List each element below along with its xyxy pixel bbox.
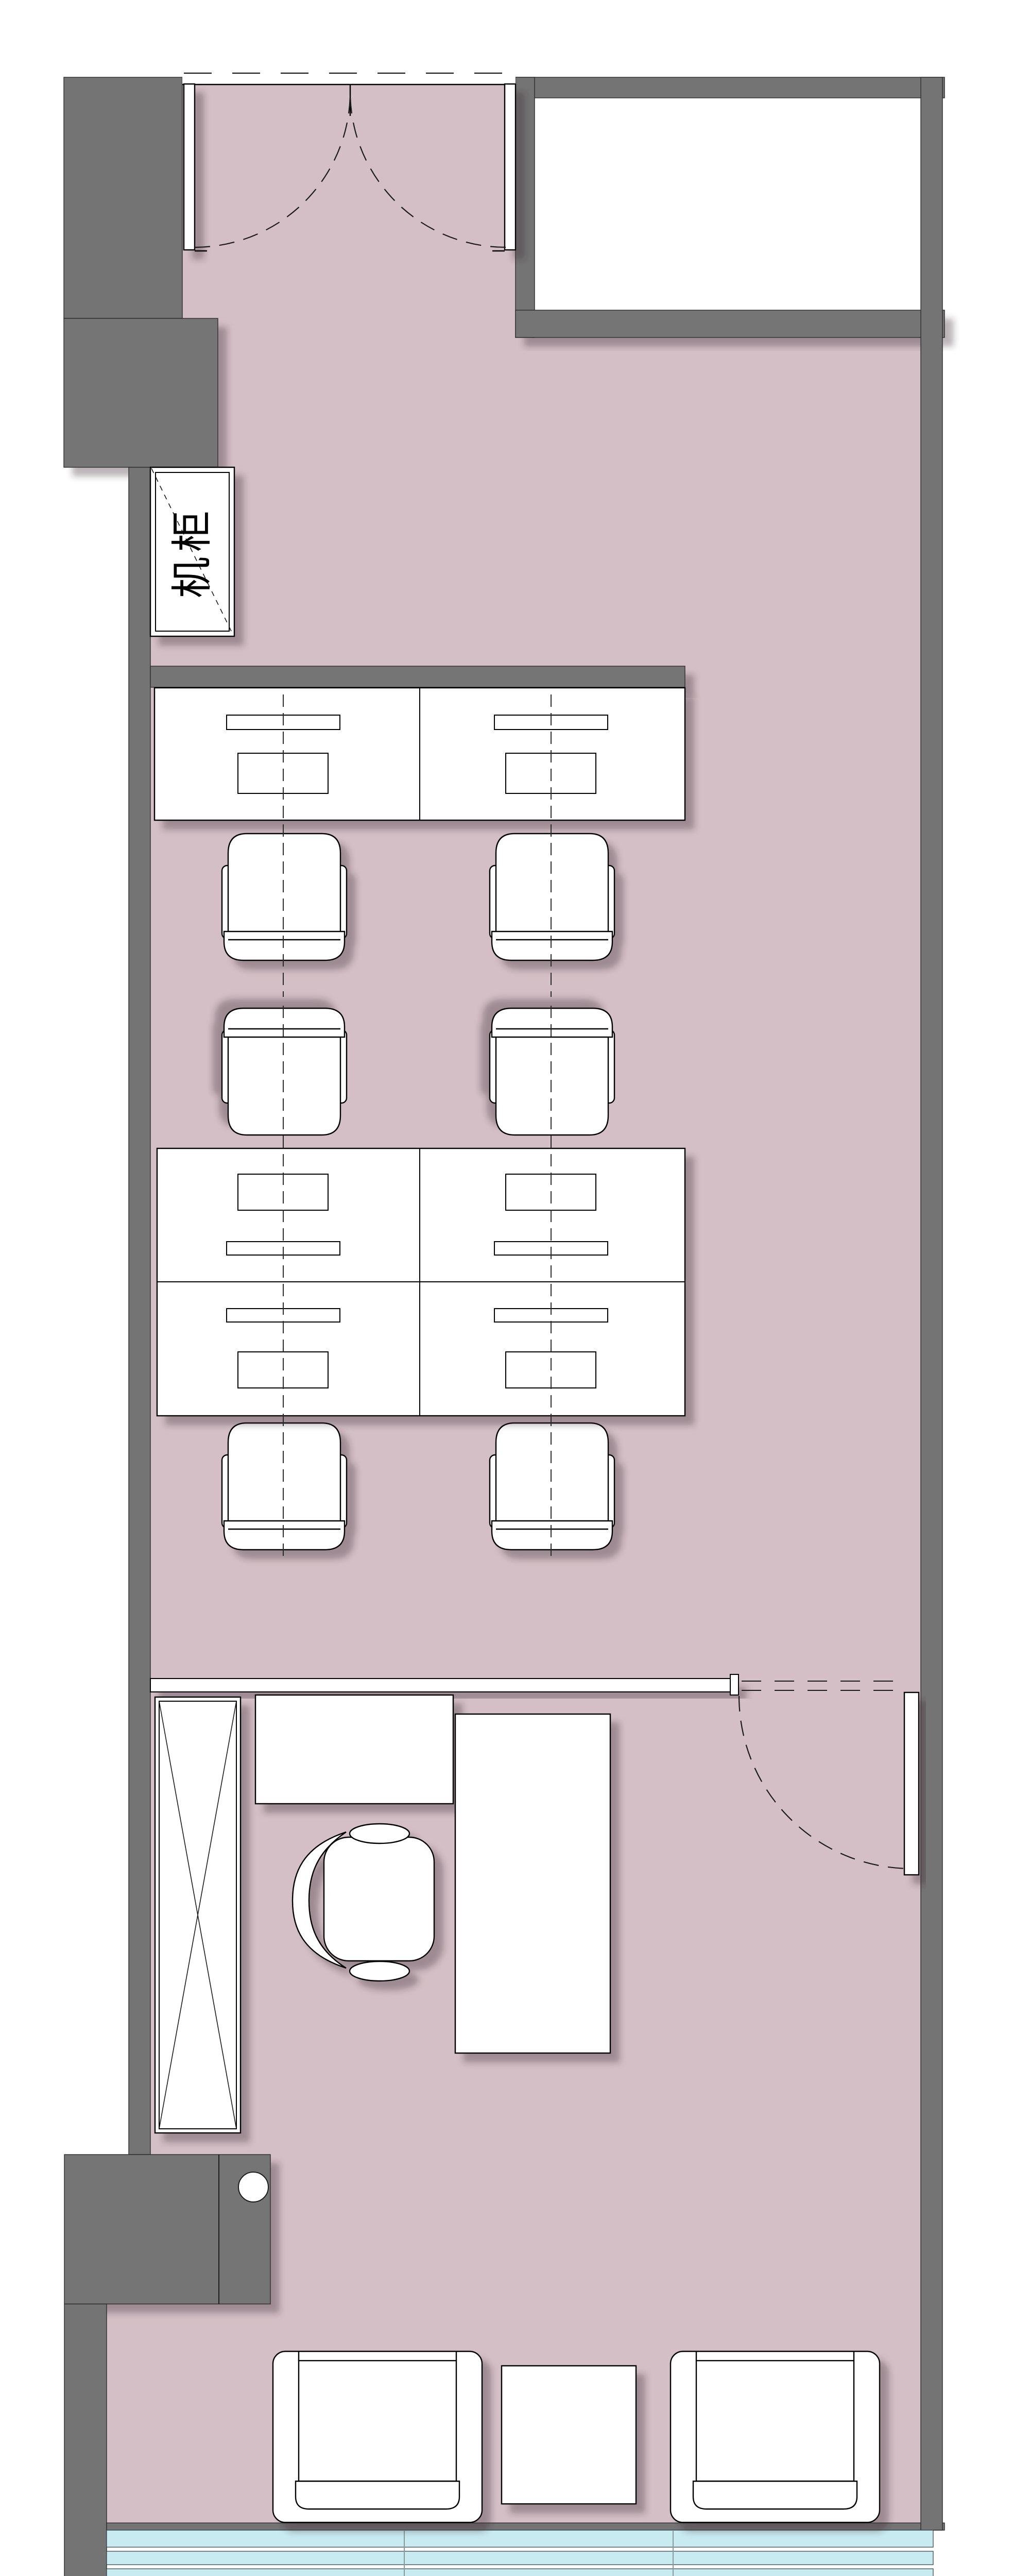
wall-top-right — [516, 77, 945, 98]
interior-door-leaf — [904, 1692, 919, 1875]
equipment-cabinet: 机柜 — [150, 467, 234, 636]
wall-partition-band — [150, 666, 685, 687]
wall-bottom-left-block — [64, 2155, 270, 2304]
task-chair — [222, 1423, 347, 1550]
chair-armrest — [350, 1961, 409, 1981]
window-strip — [107, 2530, 933, 2547]
task-chair — [490, 834, 614, 960]
window-curtain-wall — [107, 2530, 933, 2576]
bookshelf — [155, 1697, 241, 2133]
cabinet-label: 机柜 — [168, 505, 216, 598]
door-leaf-right — [505, 84, 516, 250]
chair-seat — [324, 1837, 434, 1961]
sofa — [273, 2351, 482, 2522]
window-strip — [107, 2551, 933, 2565]
wall-lower-left-pier — [64, 318, 218, 467]
column-circle — [238, 2172, 268, 2202]
wall-left-mid — [129, 467, 150, 2155]
sofa-zone — [273, 2351, 880, 2522]
task-chair — [222, 834, 347, 960]
window-strip — [107, 2569, 933, 2576]
floor-plan-canvas: 机柜 — [0, 0, 1030, 2576]
sofa — [671, 2351, 880, 2522]
partition-end-cap — [730, 1674, 739, 1695]
chair-armrest — [350, 1824, 409, 1843]
door-leaf-left — [184, 84, 195, 250]
door-threshold — [182, 72, 516, 84]
wall-bottom-sill — [107, 2523, 945, 2530]
wall-right — [921, 77, 942, 2530]
desk-return-surface — [455, 1714, 610, 2053]
wall-left-bottom — [64, 2304, 107, 2576]
task-chair — [490, 1423, 614, 1550]
wall-upper-left-pier — [64, 77, 182, 318]
desk-main-surface — [255, 1695, 453, 1804]
floor-plan-page: 机柜 — [0, 0, 1030, 2576]
wall-right-pier — [516, 77, 535, 337]
task-chair — [490, 1008, 614, 1135]
desk-cluster — [157, 1148, 685, 1416]
wall-right-band — [516, 310, 945, 337]
desk-row-1 — [154, 688, 685, 820]
task-chair — [222, 1008, 347, 1135]
coffee-table — [502, 2366, 636, 2504]
